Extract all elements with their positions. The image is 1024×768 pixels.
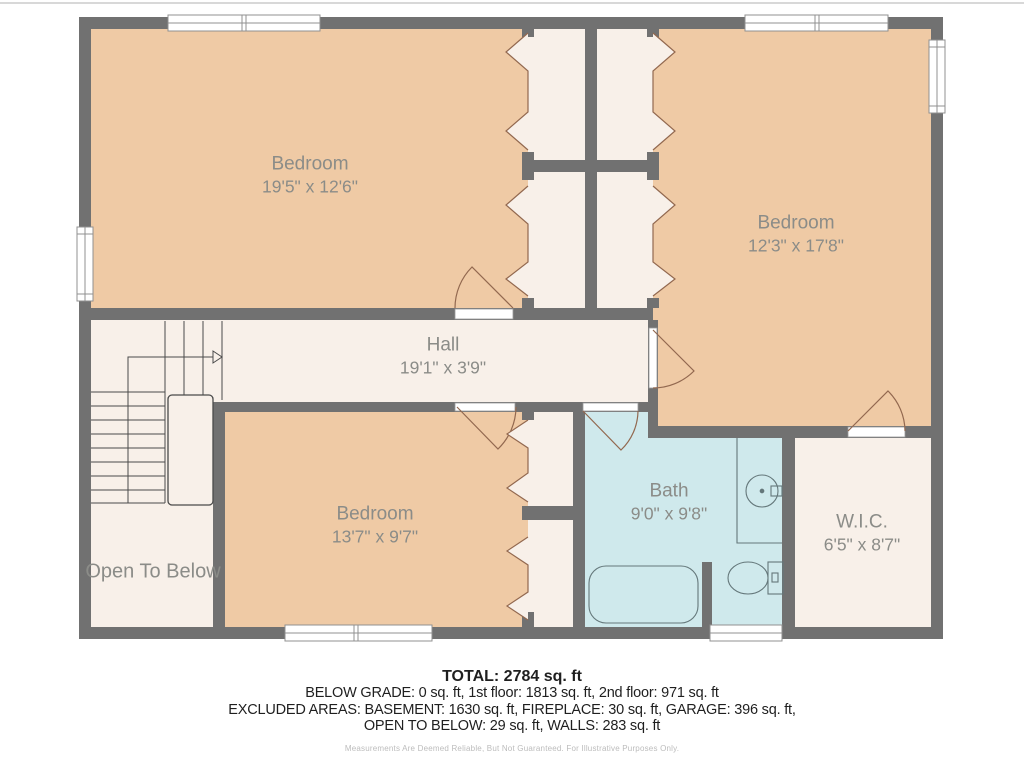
room-hall-floor	[91, 320, 648, 402]
closet-divider-wall	[522, 160, 659, 172]
window	[77, 227, 93, 301]
window	[929, 40, 945, 113]
closet-bedroom-3-divider	[522, 506, 585, 520]
bath-wic-wall	[782, 438, 795, 627]
room-bedroom-3-floor	[225, 412, 528, 627]
disclaimer-text: Measurements Are Deemed Reliable, But No…	[0, 744, 1024, 753]
room-wic-floor	[795, 438, 931, 627]
floor-plan-page: Bedroom 19'5" x 12'6" Bedroom 12'3" x 17…	[0, 0, 1024, 768]
room-bedroom-2-floor	[653, 29, 931, 426]
window	[710, 625, 782, 641]
area-summary: TOTAL: 2784 sq. ft BELOW GRADE: 0 sq. ft…	[0, 668, 1024, 753]
tub-alcove-wall	[702, 562, 712, 627]
room-bath-floor-upper	[585, 412, 648, 438]
window	[285, 625, 432, 641]
wic-door-opening	[848, 427, 905, 437]
excluded-areas-text: EXCLUDED AREAS: BASEMENT: 1630 sq. ft, F…	[0, 702, 1024, 719]
excluded-areas-text-2: OPEN TO BELOW: 29 sq. ft, WALLS: 283 sq.…	[0, 718, 1024, 735]
bedroom-2-door-opening	[649, 328, 657, 388]
bedroom-3-left-wall	[213, 402, 225, 639]
stairwell-railing	[168, 395, 213, 505]
total-area-text: TOTAL: 2784 sq. ft	[0, 668, 1024, 685]
window	[745, 15, 888, 31]
floor-plan-drawing	[0, 0, 1024, 768]
bath-door-opening	[583, 403, 638, 411]
bedroom-1-door-opening	[455, 309, 513, 319]
toilet-icon	[728, 562, 768, 594]
floor-areas-text: BELOW GRADE: 0 sq. ft, 1st floor: 1813 s…	[0, 685, 1024, 702]
room-bedroom-1-floor	[91, 29, 528, 308]
window	[168, 15, 320, 31]
bedroom-3-door-opening	[455, 403, 515, 411]
room-bath-floor	[585, 438, 782, 627]
